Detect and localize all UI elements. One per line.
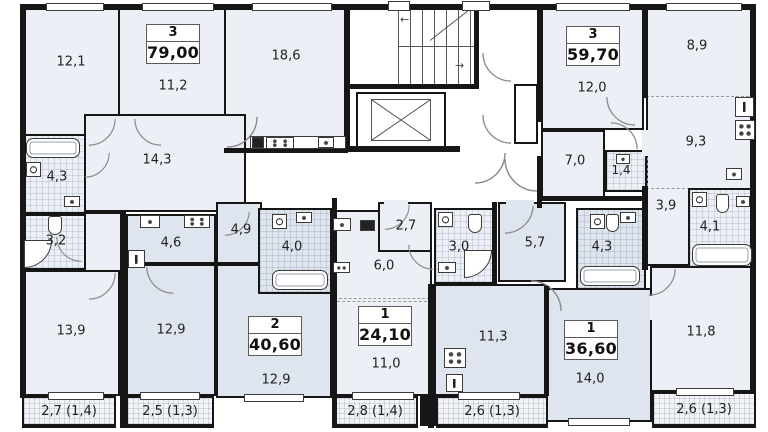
door-arc <box>504 204 534 234</box>
room-area-label: 1,4 <box>611 163 630 177</box>
apartment-total-area: 24,10 <box>359 324 411 345</box>
room-area-label: 14,0 <box>576 372 605 387</box>
apartment-total-area: 79,00 <box>147 42 199 63</box>
elevator-cross-icon <box>372 100 430 140</box>
door-arc <box>88 118 116 146</box>
room-area-label: 6,0 <box>374 259 395 274</box>
room-area-label: 3,2 <box>46 234 67 249</box>
bathtub-icon <box>580 266 640 286</box>
apartment-badge-79-00: 3 79,00 <box>146 24 200 64</box>
zone-line-6-0 <box>334 298 430 299</box>
service-shaft <box>514 84 538 144</box>
apartment-rooms-count: 2 <box>249 317 301 334</box>
wall-divider-2 <box>332 198 337 428</box>
window-8-9 <box>666 3 742 11</box>
door-opening-apt40 <box>226 206 252 212</box>
sink-icon <box>318 137 334 148</box>
window-12-9b <box>244 394 304 402</box>
balcony-5-label: 2,6 (1,3) <box>676 402 732 417</box>
wall-between-12-0-and-8-9 <box>642 4 648 98</box>
sink-icon <box>726 168 742 180</box>
window-14-0 <box>568 418 630 426</box>
window-11-8 <box>676 388 734 396</box>
toilet-icon <box>606 214 619 232</box>
balcony-1: 2,7 (1,4) <box>22 396 116 428</box>
washer-icon <box>438 212 453 227</box>
door-opening-11-8 <box>650 296 654 320</box>
room-area-label: 9,3 <box>686 135 707 150</box>
room-area-label: 2,7 <box>396 219 417 234</box>
door-arc <box>482 114 512 144</box>
wall-divider-3b <box>492 202 497 286</box>
wall-right <box>750 4 756 394</box>
window-stair-2 <box>462 1 490 11</box>
apartment-total-area: 40,60 <box>249 334 301 355</box>
toilet-icon <box>716 194 729 213</box>
stair-landing-line <box>398 46 474 47</box>
room-area-label: 11,2 <box>159 79 188 94</box>
wall-balcony-34 <box>420 396 436 426</box>
stove-icon <box>266 137 294 149</box>
stove-icon <box>444 348 466 368</box>
window-11-0 <box>352 392 414 400</box>
door-arc <box>482 52 512 82</box>
washer-icon <box>590 214 605 229</box>
room-area-label: 14,3 <box>143 153 172 168</box>
apartment-rooms-count: 3 <box>567 27 619 44</box>
apartment-badge-40-60: 2 40,60 <box>248 316 302 356</box>
toilet-icon <box>48 216 62 235</box>
balcony-2-label: 2,5 (1,3) <box>142 404 198 419</box>
room-area-label: 12,9 <box>157 323 186 338</box>
door-arc <box>408 244 434 270</box>
door-arc <box>610 122 638 150</box>
wall-apt2-left-upper <box>537 4 542 122</box>
room-area-label: 12,1 <box>57 55 86 70</box>
sink-icon <box>620 212 636 223</box>
room-area-label: 4,3 <box>592 240 613 255</box>
washer-icon <box>272 214 287 229</box>
apartment-rooms-count: 1 <box>565 321 617 338</box>
stair-arrow-down: → <box>455 60 464 71</box>
room-area-label: 4,0 <box>282 240 303 255</box>
wall-between-1-4-and-3-9 <box>642 186 648 270</box>
room-area-label: 3,0 <box>449 240 470 255</box>
stair-arrow-up: ← <box>400 14 409 25</box>
room-area-label: 11,0 <box>372 357 401 372</box>
wall-stair-right <box>474 4 479 88</box>
oven-icon <box>252 137 264 148</box>
balcony-3: 2,8 (1,4) <box>332 396 418 428</box>
wall-left <box>20 4 26 398</box>
stove-icon <box>360 220 375 231</box>
window-stair-1 <box>388 1 410 11</box>
door-arc <box>146 266 174 294</box>
apartment-rooms-count: 1 <box>359 307 411 324</box>
balcony-2: 2,5 (1,3) <box>126 396 214 428</box>
wall-under-12-0 <box>541 196 647 201</box>
room-area-label: 4,6 <box>161 236 182 251</box>
room-area-label: 4,1 <box>700 220 721 235</box>
wall-stair-left <box>344 4 350 152</box>
room-area-label: 5,7 <box>525 236 546 251</box>
room-area-label: 4,3 <box>47 170 68 185</box>
balcony-3-label: 2,8 (1,4) <box>347 404 403 419</box>
apartment-rooms-count: 3 <box>147 25 199 42</box>
elevator-cab <box>371 99 431 141</box>
bathtub-icon <box>26 138 80 158</box>
fridge-icon <box>128 250 145 268</box>
window-12-0 <box>556 3 630 11</box>
washer-icon <box>692 192 707 207</box>
room-hall-strip <box>84 212 124 272</box>
window-13-9 <box>48 392 104 400</box>
balcony-5: 2,6 (1,3) <box>652 392 756 428</box>
apartment-badge-24-10: 1 24,10 <box>358 306 412 346</box>
apartment-badge-36-60: 1 36,60 <box>564 320 618 360</box>
fridge-icon <box>735 97 754 117</box>
room-area-label: 8,9 <box>687 39 708 54</box>
room-area-label: 11,3 <box>479 330 508 345</box>
door-arc <box>648 268 676 296</box>
window-12-1 <box>46 3 104 11</box>
room-area-label: 13,9 <box>57 324 86 339</box>
window-18-6 <box>252 3 332 11</box>
door-arc <box>84 152 110 178</box>
bathtub-icon <box>272 270 328 290</box>
sink-icon <box>296 212 312 223</box>
wall-elevator-bottom <box>344 146 460 152</box>
balcony-1-label: 2,7 (1,4) <box>41 404 97 419</box>
wall-stair-bottom <box>344 84 479 89</box>
door-arc <box>134 118 162 146</box>
sink-icon <box>736 196 750 207</box>
door-opening-7-0 <box>642 130 648 156</box>
fridge-icon <box>446 374 463 392</box>
apartment-total-area: 59,70 <box>567 44 619 65</box>
floor-plan: ← → 2,7 (1,4) 2,5 (1,3) 2,8 (1,4) 2,6 (1… <box>0 0 768 432</box>
sink-icon <box>64 196 80 207</box>
door-opening-apt24 <box>384 200 408 206</box>
room-area-label: 7,0 <box>565 154 586 169</box>
sink-icon <box>140 215 160 228</box>
stove-icon <box>735 120 755 140</box>
washer-icon <box>26 162 41 177</box>
wall-divider-1 <box>120 210 126 428</box>
room-area-label: 12,9 <box>262 373 291 388</box>
room-area-label: 12,0 <box>578 81 607 96</box>
toilet-icon <box>468 214 482 233</box>
room-area-label: 11,8 <box>687 325 716 340</box>
stove-icon <box>184 215 210 228</box>
room-area-label: 3,9 <box>656 199 677 214</box>
door-arc <box>88 272 116 300</box>
door-arc <box>504 158 538 192</box>
sink-icon <box>333 218 351 231</box>
stair-treads <box>398 10 474 84</box>
window-11-2 <box>142 3 214 11</box>
apartment-badge-59-70: 3 59,70 <box>566 26 620 66</box>
balcony-4: 2,6 (1,3) <box>436 396 548 428</box>
wall-divider-4 <box>544 286 549 396</box>
window-12-9a <box>140 392 200 400</box>
window-11-3 <box>458 392 520 400</box>
room-area-label: 4,9 <box>231 223 252 238</box>
room-area-label: 18,6 <box>272 49 301 64</box>
door-opening-apt36 <box>506 200 534 206</box>
bathtub-icon <box>692 244 752 266</box>
apartment-total-area: 36,60 <box>565 338 617 359</box>
door-arc <box>474 152 506 184</box>
balcony-4-label: 2,6 (1,3) <box>464 404 520 419</box>
sink-icon <box>333 262 350 273</box>
sink-icon <box>438 262 456 273</box>
